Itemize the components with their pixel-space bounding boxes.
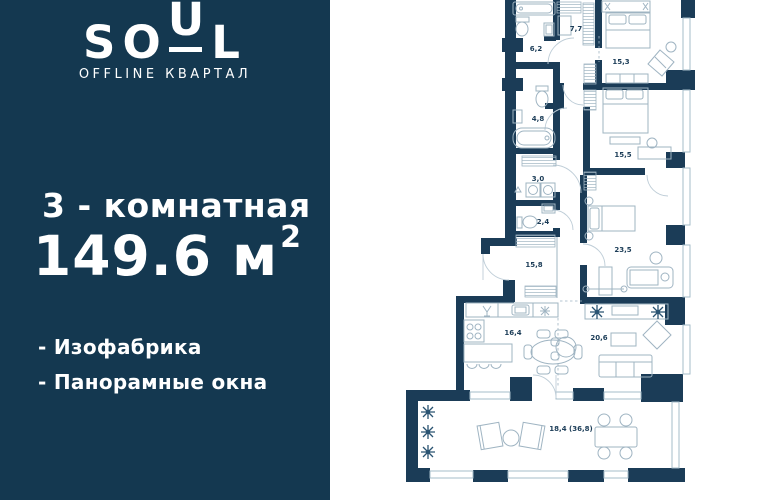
terrace-furniture xyxy=(421,405,637,459)
logo-letters-so: SO xyxy=(83,20,168,65)
living-furniture xyxy=(551,321,671,377)
feature-item: - Изофабрика xyxy=(38,330,267,365)
feature-list: - Изофабрика - Панорамные окна xyxy=(38,330,267,400)
feature-item: - Панорамные окна xyxy=(38,365,267,400)
bathroom-fixtures xyxy=(513,2,555,36)
master-bedroom-furniture xyxy=(583,172,673,295)
room-label-master-bedroom: 23,5 xyxy=(614,246,631,254)
room-label-bedroom-2: 15,5 xyxy=(614,151,631,159)
logo-letter-l: L xyxy=(211,20,247,65)
rooms-count-title: 3 - комнатная xyxy=(42,186,311,225)
room-label-wc: 2,4 xyxy=(537,218,550,226)
logo-letter-u-raised: U xyxy=(168,0,205,52)
flyer: 7,76,215,34,815,53,02,423,515,816,420,61… xyxy=(0,0,770,500)
room-label-kitchen: 16,4 xyxy=(504,329,521,337)
brand-subtitle: OFFLINE КВАРТАЛ xyxy=(0,67,330,82)
kitchen-furniture xyxy=(464,303,582,374)
room-label-laundry: 3,0 xyxy=(532,175,545,183)
bedroom1-furniture xyxy=(602,1,676,83)
balcony xyxy=(585,304,668,319)
room-label-terrace: 18,4 (36,8) xyxy=(549,425,592,433)
area-value: 149.6 xyxy=(33,224,212,288)
room-label-wardrobe: 7,7 xyxy=(570,25,583,33)
room-label-bedroom-1: 15,3 xyxy=(612,58,629,66)
room-label-bathroom-2: 4,8 xyxy=(532,115,545,123)
brand-logo: SO U L xyxy=(0,10,330,65)
room-label-bathroom: 6,2 xyxy=(530,45,543,53)
info-panel: SO U L OFFLINE КВАРТАЛ 3 - комнатная 149… xyxy=(0,0,330,500)
room-label-living-room: 20,6 xyxy=(590,334,607,342)
total-area: 149.6 м2 xyxy=(33,224,300,288)
area-unit: м xyxy=(212,224,278,288)
area-superscript: 2 xyxy=(280,220,302,255)
wardrobe-fixtures xyxy=(557,2,594,45)
room-label-hallway: 15,8 xyxy=(525,261,542,269)
logo-underline-bar xyxy=(169,47,202,52)
